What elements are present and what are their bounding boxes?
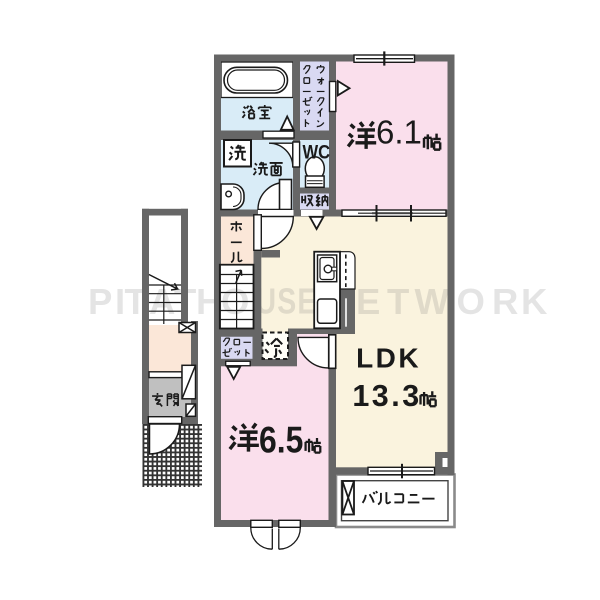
svg-text:USE: USE	[256, 280, 318, 321]
svg-text:13.3: 13.3	[352, 379, 421, 413]
svg-text:6.5: 6.5	[259, 419, 303, 461]
svg-text:NETWORK: NETWORK	[326, 281, 548, 322]
svg-text:6.1: 6.1	[376, 113, 422, 150]
svg-text:LDK: LDK	[356, 342, 421, 373]
svg-text:WC: WC	[303, 141, 331, 163]
